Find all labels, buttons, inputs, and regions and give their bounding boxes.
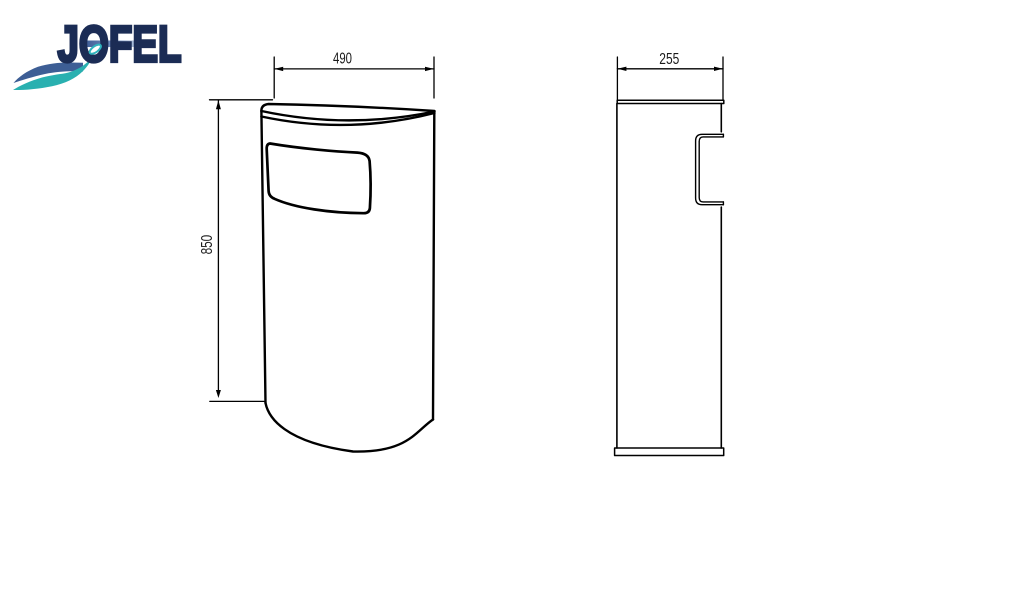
svg-text:850: 850 [199,235,216,255]
svg-text:490: 490 [333,50,352,67]
svg-text:255: 255 [659,51,679,68]
svg-text:JOFEL: JOFEL [58,16,182,73]
